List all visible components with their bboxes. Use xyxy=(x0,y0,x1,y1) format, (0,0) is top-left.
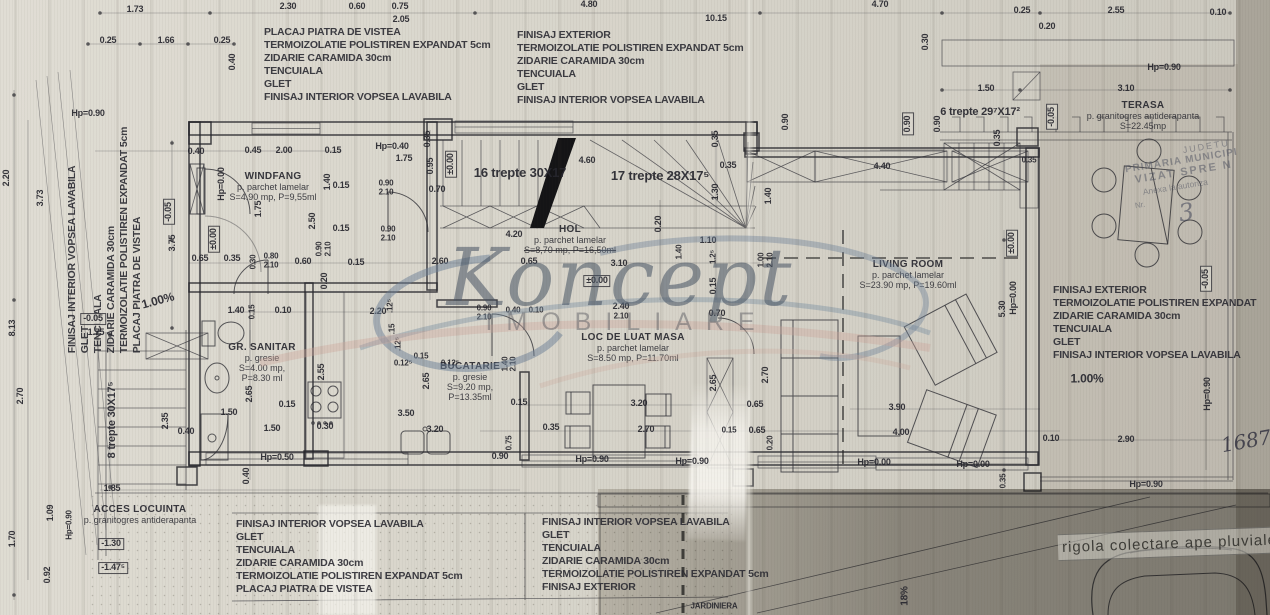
dim-label: 0.35 xyxy=(720,161,737,171)
spec-line: TERMOIZOLATIE POLISTIREN EXPANDAT 5cm xyxy=(264,39,491,52)
dim-label: 0.30 xyxy=(921,34,931,51)
dim-label: 10.15 xyxy=(705,14,727,24)
dim-label: 1.73 xyxy=(127,5,144,15)
spec-block-top-left: PLACAJ PIATRA DE VISTEATERMOIZOLATIE POL… xyxy=(264,26,491,104)
spec-line: PLACAJ PIATRA DE VISTEA xyxy=(236,583,463,596)
dim-label: 0.35 xyxy=(1000,474,1009,489)
dim-label: 0.15 xyxy=(511,398,528,408)
living-furniture xyxy=(781,294,997,472)
dim-label: Hp=0.90 xyxy=(1147,63,1180,73)
dim-label: 0.30 xyxy=(317,422,334,432)
dim-label: 2.00 xyxy=(276,146,293,156)
dim-label: 1.75 xyxy=(88,328,105,338)
spec-line: FINISAJ INTERIOR VOPSEA LAVABILA xyxy=(517,94,744,107)
room-label-living-room: LIVING ROOMp. parchet lamelarS=23.90 mp,… xyxy=(859,259,956,290)
dim-label: 0.20 xyxy=(767,436,776,451)
dim-label: 1.50 xyxy=(978,84,995,94)
dim-label: 2.65 xyxy=(709,375,719,392)
dim-label: .12⁵ xyxy=(387,299,396,313)
dim-label: 0.20 xyxy=(654,216,664,233)
dim-label: 8 trepte 30X17⁵ xyxy=(106,382,118,459)
dim-label: 4.20 xyxy=(506,230,523,240)
dim-label: 0.25 xyxy=(214,36,231,46)
dim-label: -0.05 xyxy=(163,199,175,225)
dim-label: 0.10 xyxy=(529,307,544,316)
dim-label: 2.50 xyxy=(308,213,318,230)
dim-label: Hp=0.90 xyxy=(1203,377,1213,410)
dim-label: 0.90 xyxy=(902,113,914,136)
room-label-line: S=9.20 mp, xyxy=(440,382,500,392)
room-label-line: S=23.90 mp, P=19.60ml xyxy=(859,280,956,290)
spec-line: PLACAJ PIATRA DE VISTEA xyxy=(131,127,144,354)
room-label-line: ACCES LOCUINTA xyxy=(84,504,197,515)
spec-line: TENCUIALA xyxy=(517,68,744,81)
dim-label: 1.50 xyxy=(264,424,281,434)
spec-line: ZIDARIE CARAMIDA 30cm xyxy=(517,55,744,68)
room-label-line: S=4.90 mp, P=9,55ml xyxy=(229,192,316,202)
dim-label: Hp=0.00 xyxy=(1009,281,1019,314)
dim-label: 1.40 xyxy=(323,174,333,191)
spec-line: TERMOIZOLATIE POLISTIREN EXPANDAT xyxy=(1053,297,1256,310)
dim-label: 0.10 xyxy=(275,306,292,316)
room-label-line: p. granitogres antiderapanta xyxy=(1087,111,1200,121)
room-label-gr-sanitar: GR. SANITARp. gresieS=4.00 mp,P=8.30 ml xyxy=(228,342,296,383)
dim-label: 0.40 xyxy=(242,468,252,485)
dim-label: 4.60 xyxy=(579,156,596,166)
dim-label: Hp=0.90 xyxy=(71,109,104,119)
dim-label: 1.50 xyxy=(221,408,238,418)
spec-line: GLET xyxy=(542,529,769,542)
dim-label: 2.10 xyxy=(264,262,279,271)
dim-label: 0.15 xyxy=(722,427,737,436)
dim-label: 4.40 xyxy=(874,162,891,172)
dim-label: 0.90 xyxy=(492,452,509,462)
spec-block-right: FINISAJ EXTERIORTERMOIZOLATIE POLISTIREN… xyxy=(1053,284,1256,362)
dim-label: 0.12⁵ xyxy=(394,360,412,369)
dim-label: Hp=0.90 xyxy=(575,455,608,465)
dim-label: 2.10 xyxy=(381,235,396,244)
room-label-line: LIVING ROOM xyxy=(859,259,956,270)
room-label-line: HOL xyxy=(524,224,616,235)
dim-label: 3.75 xyxy=(168,235,178,252)
dim-label: 1.40 xyxy=(228,306,245,316)
dim-label: 2.30 xyxy=(280,2,297,12)
room-label-line: p. gresie xyxy=(440,372,500,382)
spec-line: GLET xyxy=(264,78,491,91)
spec-line: ZIDARIE CARAMIDA 30cm xyxy=(1053,310,1256,323)
dim-label: 1.09 xyxy=(46,505,56,522)
dim-label: 2.70 xyxy=(16,388,26,405)
dim-label: 2.60 xyxy=(432,257,449,267)
room-label-line: S=8.50 mp, P=11.70ml xyxy=(581,353,685,363)
dim-label: 2.20 xyxy=(370,307,387,317)
dim-label: 1.00% xyxy=(1070,372,1103,385)
dim-label: -0.05 xyxy=(80,313,106,325)
dim-label: Hp=0.40 xyxy=(375,142,408,152)
room-label-terasa: TERASAp. granitogres antiderapantaS=22.4… xyxy=(1087,100,1200,131)
spec-block-bottom-left: FINISAJ INTERIOR VOPSEA LAVABILAGLETTENC… xyxy=(236,518,463,596)
dim-label: 0.95 xyxy=(426,158,436,175)
dim-label: 0.40 xyxy=(506,307,521,316)
dim-label: 0.10 xyxy=(1043,434,1060,444)
spec-line: FINISAJ INTERIOR VOPSEA LAVABILA xyxy=(1053,349,1256,362)
spec-line: TERMOIZOLATIE POLISTIREN EXPANDAT 5cm xyxy=(542,568,769,581)
room-label-line: p. parchet lamelar xyxy=(581,343,685,353)
dim-label: 1.30 xyxy=(711,184,721,201)
dim-label: 2.05 xyxy=(393,15,410,25)
dim-label: 3.10 xyxy=(1118,84,1135,94)
spec-line: TENCUIALA xyxy=(542,542,769,555)
dim-label: 1.2⁵ xyxy=(710,250,719,264)
dim-label: .15 xyxy=(389,324,398,335)
dim-label: 0.15 xyxy=(325,146,342,156)
dim-label: 6 trepte 29⁷X17² xyxy=(940,106,1020,118)
dim-label: 2.10 xyxy=(379,189,394,198)
spec-line: FINISAJ INTERIOR VOPSEA LAVABILA xyxy=(66,127,79,354)
room-label-line: p. parchet lamelar xyxy=(229,182,316,192)
dim-label: 1.40 xyxy=(764,188,774,205)
dim-label: 0.65 xyxy=(749,426,766,436)
dim-label: 0.12⁵ xyxy=(441,360,459,369)
spec-line: PLACAJ PIATRA DE VISTEA xyxy=(264,26,491,39)
terrace-furniture xyxy=(1092,139,1202,267)
dim-label: 2.65 xyxy=(422,373,432,390)
dim-label: 1.66 xyxy=(158,36,175,46)
dim-label: 1.85 xyxy=(104,484,121,494)
dim-label: 0.35 xyxy=(543,423,560,433)
dim-label: 0.70 xyxy=(709,309,726,319)
dim-label: 0.15 xyxy=(414,353,429,362)
dim-label: 0.35 xyxy=(711,131,721,148)
spec-line: TERMOIZOLATIE POLISTIREN EXPANDAT 5cm xyxy=(236,570,463,583)
dim-label: 0.35 xyxy=(993,130,1003,147)
dim-label: ±0.00 xyxy=(445,150,457,177)
dim-label: 3.73 xyxy=(36,190,46,207)
spec-line: GLET xyxy=(1053,336,1256,349)
dim-label: 2.10 xyxy=(614,313,629,322)
dim-label: 0.70 xyxy=(429,185,446,195)
dim-label: 2.40 xyxy=(613,302,630,312)
room-label-line: p. granitogres antiderapanta xyxy=(84,515,197,525)
slope-label: 18% xyxy=(900,586,911,605)
dim-label: 0.30 xyxy=(250,255,259,270)
spec-line: TENCUIALA xyxy=(236,544,463,557)
dim-label: 16 trepte 30X17 xyxy=(474,166,566,180)
dim-label: 0.40 xyxy=(188,147,205,157)
dim-label: .12⁵ xyxy=(395,337,404,351)
spec-line: FINISAJ EXTERIOR xyxy=(517,29,744,42)
room-label-line: S=22.45mp xyxy=(1087,121,1200,131)
dim-label: 0.65 xyxy=(521,257,538,267)
dim-label: 2.55 xyxy=(1108,6,1125,16)
dim-label: 2.70 xyxy=(638,425,655,435)
spec-line: ZIDARIE CARAMIDA 30cm xyxy=(105,127,118,354)
dim-label: 2.70 xyxy=(761,367,771,384)
dim-label: ±0.00 xyxy=(1006,229,1018,256)
dim-label: 0.35 xyxy=(224,254,241,264)
dim-label: 0.35 xyxy=(423,131,433,148)
dim-label: 2.10 xyxy=(325,242,334,257)
dim-label: 1.10 xyxy=(700,236,717,246)
rigola-label: rigola colectare ape pluviale xyxy=(1058,532,1270,557)
dim-label: 0.15 xyxy=(709,278,719,295)
dim-label: 5.30 xyxy=(998,301,1008,318)
dim-label: 0.20 xyxy=(320,273,330,290)
dim-label: 4.70 xyxy=(872,0,889,10)
dim-label: 0.20 xyxy=(1039,22,1056,32)
dim-label: 3.20 xyxy=(427,425,444,435)
dim-label: Hp=0.00 xyxy=(956,460,989,470)
spec-line: ZIDARIE CARAMIDA 30cm xyxy=(264,52,491,65)
dim-label: 1.75 xyxy=(396,154,413,164)
dim-label: 0.15 xyxy=(333,224,350,234)
room-label-hol: HOLp. parchet lamelarS=8,70 mp, P=16,50m… xyxy=(524,224,616,255)
dim-label: 0.25 xyxy=(100,36,117,46)
spec-line: ZIDARIE CARAMIDA 30cm xyxy=(542,555,769,568)
dining-set xyxy=(565,385,671,458)
spec-line: FINISAJ EXTERIOR xyxy=(542,581,769,594)
dim-label: ±0.00 xyxy=(208,225,220,252)
spec-line: FINISAJ INTERIOR VOPSEA LAVABILA xyxy=(264,91,491,104)
dim-label: 2.10 xyxy=(510,357,519,372)
jardiniera-label: JARDINIERA xyxy=(691,603,738,612)
spec-line: GLET xyxy=(517,81,744,94)
dim-label: 2.65 xyxy=(245,386,255,403)
spec-block-bottom-center: FINISAJ INTERIOR VOPSEA LAVABILAGLETTENC… xyxy=(542,516,769,594)
dim-label: 4.00 xyxy=(893,428,910,438)
spec-line: TENCUIALA xyxy=(264,65,491,78)
dim-label: 2.55 xyxy=(317,364,327,381)
dim-label: 0.60 xyxy=(295,257,312,267)
room-label-line: P=13.35ml xyxy=(440,392,500,402)
room-label-line: S=8,70 mp, P=16,50ml xyxy=(524,245,616,255)
dim-label: 0.92 xyxy=(43,567,53,584)
dim-label: 3.50 xyxy=(398,409,415,419)
dim-label: Hp=0.50 xyxy=(260,453,293,463)
dim-label: ±0.00 xyxy=(583,275,610,287)
dim-label: 0.45 xyxy=(245,146,262,156)
room-label-line: p. parchet lamelar xyxy=(859,270,956,280)
room-label-line: p. parchet lamelar xyxy=(524,235,616,245)
dim-label: 1.75 xyxy=(254,201,264,218)
dim-label: 0.40 xyxy=(178,427,195,437)
spec-line: TERMOIZOLATIE POLISTIREN EXPANDAT 5cm xyxy=(517,42,744,55)
dim-label: 0.90 xyxy=(933,116,943,133)
room-label-line: LOC DE LUAT MASA xyxy=(581,332,685,343)
dim-label: 0.15 xyxy=(279,400,296,410)
dim-label: 0.15 xyxy=(333,181,350,191)
dim-label: 0.35 xyxy=(1022,157,1037,166)
dim-label: 3.90 xyxy=(889,403,906,413)
dim-label: 8.13 xyxy=(8,320,18,337)
dim-label: 0.75 xyxy=(392,2,409,12)
dim-label: 0.90 xyxy=(781,114,791,131)
spec-line: TERMOIZOLATIE POLISTIREN EXPANDAT 5cm xyxy=(118,127,131,354)
room-label-line: GR. SANITAR xyxy=(228,342,296,353)
room-label-acces-locuinta: ACCES LOCUINTAp. granitogres antiderapan… xyxy=(84,504,197,525)
dim-label: Hp=0.00 xyxy=(857,458,890,468)
room-label-line: P=8.30 ml xyxy=(228,373,296,383)
dim-label: -1.30 xyxy=(98,538,124,550)
dim-label: 3.20 xyxy=(631,399,648,409)
dim-label: -0.05 xyxy=(1046,104,1058,130)
spec-line: FINISAJ INTERIOR VOPSEA LAVABILA xyxy=(542,516,769,529)
room-label-windfang: WINDFANGp. parchet lamelarS=4.90 mp, P=9… xyxy=(229,171,316,202)
dim-label: 17 trepte 28X17⁵ xyxy=(611,169,709,183)
dim-label: 2.10 xyxy=(477,314,492,323)
room-label-line: S=4.00 mp, xyxy=(228,363,296,373)
spec-line: GLET xyxy=(236,531,463,544)
dim-label: 2.10 xyxy=(767,253,776,268)
spec-line: FINISAJ INTERIOR VOPSEA LAVABILA xyxy=(236,518,463,531)
scanned-floor-plan: rigola colectare ape pluviale PLACAJ PIA… xyxy=(0,0,1270,615)
dim-label: 1.70 xyxy=(8,531,18,548)
dim-label: -1.47⁵ xyxy=(98,562,128,574)
dim-label: 4.80 xyxy=(581,0,598,10)
dim-label: 0.25 xyxy=(1014,6,1031,16)
room-label-line: p. gresie xyxy=(228,353,296,363)
spec-block-top-center: FINISAJ EXTERIORTERMOIZOLATIE POLISTIREN… xyxy=(517,29,744,107)
dim-label: 2.35 xyxy=(161,413,171,430)
dim-label: Hp=0.00 xyxy=(217,167,227,200)
dim-label: 0.15 xyxy=(249,305,258,320)
dim-label: 1.40 xyxy=(676,245,685,260)
dim-label: 0.10 xyxy=(1210,8,1227,18)
room-label-line: TERASA xyxy=(1087,100,1200,111)
dim-label: Hp=0.90 xyxy=(675,457,708,467)
dim-label: 0.15 xyxy=(348,258,365,268)
dim-label: 0.60 xyxy=(349,2,366,12)
room-label-loc-de-luat-masa: LOC DE LUAT MASAp. parchet lamelarS=8.50… xyxy=(581,332,685,363)
dim-label: -0.05 xyxy=(1200,266,1212,292)
room-label-line: WINDFANG xyxy=(229,171,316,182)
dim-label: 2.90 xyxy=(1118,435,1135,445)
dim-label: 0.65 xyxy=(192,254,209,264)
dim-label: Hp=0.90 xyxy=(1129,480,1162,490)
dim-label: Hp=0.90 xyxy=(66,510,75,540)
spec-line: ZIDARIE CARAMIDA 30cm xyxy=(236,557,463,570)
dim-label: 0.40 xyxy=(228,54,238,71)
dim-label: 0.75 xyxy=(506,436,515,451)
dim-label: 3.10 xyxy=(611,259,628,269)
spec-line: FINISAJ EXTERIOR xyxy=(1053,284,1256,297)
spec-line: TENCUIALA xyxy=(1053,323,1256,336)
dim-label: 0.65 xyxy=(747,400,764,410)
dim-label: 2.20 xyxy=(2,170,12,187)
